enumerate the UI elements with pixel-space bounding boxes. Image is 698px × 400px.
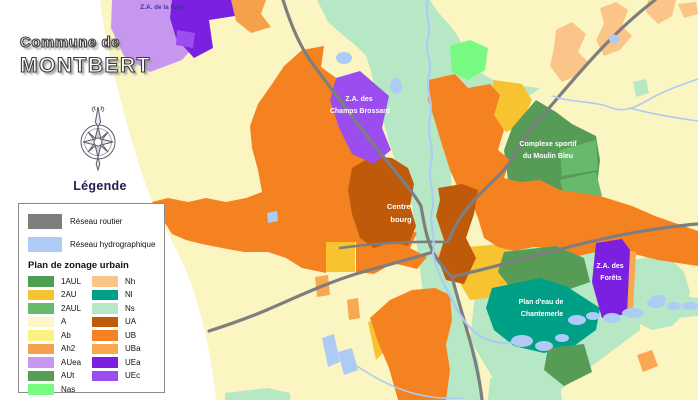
- legend-hydro-swatch: [28, 237, 62, 252]
- legend-zone-code: 2AUL: [61, 304, 81, 313]
- legend-zone-column-left: 1AUL 2AU 2AUL A Ab Ah2 AUea: [28, 276, 92, 398]
- zone-uec-raye: [176, 30, 195, 48]
- legend-zone-item: Nas: [28, 384, 92, 395]
- zoning-map-screen: Z.A. de la Raye Z.A. des Champs Brossard…: [0, 0, 698, 400]
- legend-zone-item: Nh: [92, 276, 156, 287]
- legend-zone-swatch: [28, 303, 54, 314]
- legend-zone-swatch: [28, 290, 54, 301]
- map-title: Commune de MONTBERT: [20, 34, 151, 79]
- legend-zone-code: UB: [125, 331, 136, 340]
- legend-zone-code: UA: [125, 317, 136, 326]
- legend-zone-code: Ah2: [61, 344, 75, 353]
- legend-zone-swatch: [28, 371, 54, 382]
- title-commune: Commune de: [20, 34, 151, 53]
- legend-roads-label: Réseau routier: [70, 217, 122, 226]
- legend-zone-code: Nas: [61, 385, 75, 394]
- legend-zone-code: Nh: [125, 277, 135, 286]
- legend-zone-swatch: [28, 384, 54, 395]
- legend-zone-swatch: [28, 276, 54, 287]
- legend-zone-item: Ns: [92, 303, 156, 314]
- legend-zone-code: UEc: [125, 371, 140, 380]
- legend-zone-item: 2AU: [28, 290, 92, 301]
- legend-heading: Légende: [0, 179, 200, 193]
- legend-zone-swatch: [92, 344, 118, 355]
- legend-hydro-row: Réseau hydrographique: [28, 237, 164, 252]
- legend-zone-item: UBa: [92, 344, 156, 355]
- legend-zone-code: UEa: [125, 358, 141, 367]
- legend-zone-code: 1AUL: [61, 277, 81, 286]
- legend-zone-swatch: [28, 344, 54, 355]
- legend-zone-swatch: [28, 357, 54, 368]
- legend-zone-swatch: [92, 371, 118, 382]
- legend-zone-swatch: [92, 357, 118, 368]
- legend-zone-code: Ns: [125, 304, 135, 313]
- legend-box: Réseau routier Réseau hydrographique Pla…: [18, 203, 165, 393]
- legend-zone-item: A: [28, 317, 92, 328]
- legend-zone-column-right: Nh Nl Ns UA UB UBa UEa: [92, 276, 156, 398]
- legend-zoning-heading: Plan de zonage urbain: [28, 260, 164, 271]
- legend-zone-item: Ab: [28, 330, 92, 341]
- compass-rose-icon: [68, 104, 128, 174]
- legend-hydro-label: Réseau hydrographique: [70, 240, 155, 249]
- legend-zone-swatch: [92, 303, 118, 314]
- legend-zone-code: AUt: [61, 371, 74, 380]
- legend-zone-item: UB: [92, 330, 156, 341]
- legend-zone-item: AUea: [28, 357, 92, 368]
- legend-zone-item: UA: [92, 317, 156, 328]
- legend-zone-columns: 1AUL 2AU 2AUL A Ab Ah2 AUea: [28, 276, 164, 398]
- legend-zone-code: 2AU: [61, 290, 77, 299]
- legend-zone-item: UEc: [92, 371, 156, 382]
- legend-zone-code: UBa: [125, 344, 141, 353]
- legend-zone-code: Ab: [61, 331, 71, 340]
- legend-zone-code: Nl: [125, 290, 133, 299]
- legend-zone-swatch: [28, 330, 54, 341]
- legend-zone-swatch: [92, 276, 118, 287]
- legend-zone-item: 1AUL: [28, 276, 92, 287]
- legend-zone-item: AUt: [28, 371, 92, 382]
- legend-roads-row: Réseau routier: [28, 214, 164, 229]
- legend-zone-swatch: [92, 330, 118, 341]
- legend-roads-swatch: [28, 214, 62, 229]
- legend-zone-item: Nl: [92, 290, 156, 301]
- legend-zone-code: AUea: [61, 358, 81, 367]
- legend-zone-item: 2AUL: [28, 303, 92, 314]
- legend-zone-swatch: [92, 317, 118, 328]
- legend-zone-code: A: [61, 317, 66, 326]
- legend-zone-swatch: [92, 290, 118, 301]
- legend-zone-item: Ah2: [28, 344, 92, 355]
- title-montbert: MONTBERT: [20, 53, 151, 79]
- map-label-za-raye: Z.A. de la Raye: [140, 4, 186, 11]
- legend-zone-swatch: [28, 317, 54, 328]
- legend-zone-item: UEa: [92, 357, 156, 368]
